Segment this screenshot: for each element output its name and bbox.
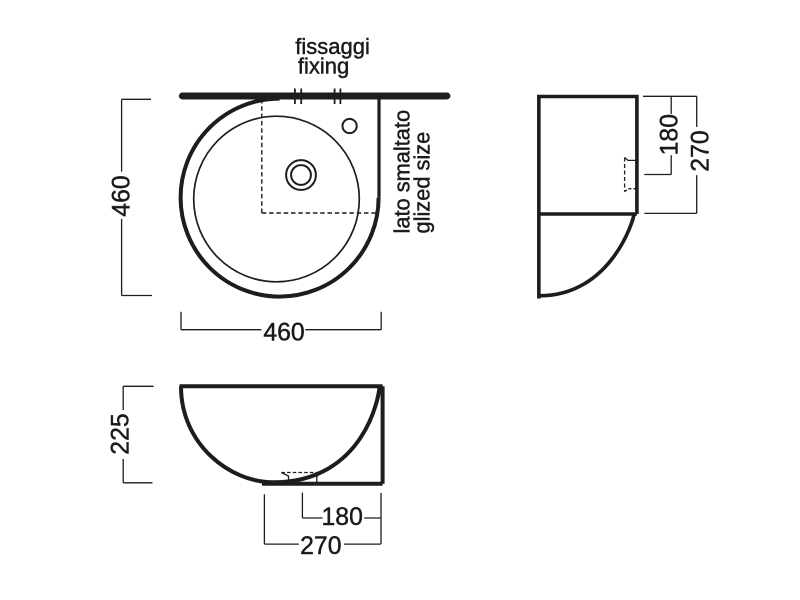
svg-text:460: 460 <box>263 319 304 346</box>
svg-text:180: 180 <box>656 114 683 155</box>
svg-text:180: 180 <box>322 504 363 531</box>
svg-text:225: 225 <box>107 413 134 454</box>
svg-text:fixing: fixing <box>298 54 349 79</box>
svg-text:glized size: glized size <box>410 132 435 234</box>
svg-text:460: 460 <box>108 175 135 216</box>
svg-text:270: 270 <box>688 130 715 171</box>
svg-text:270: 270 <box>300 533 341 560</box>
